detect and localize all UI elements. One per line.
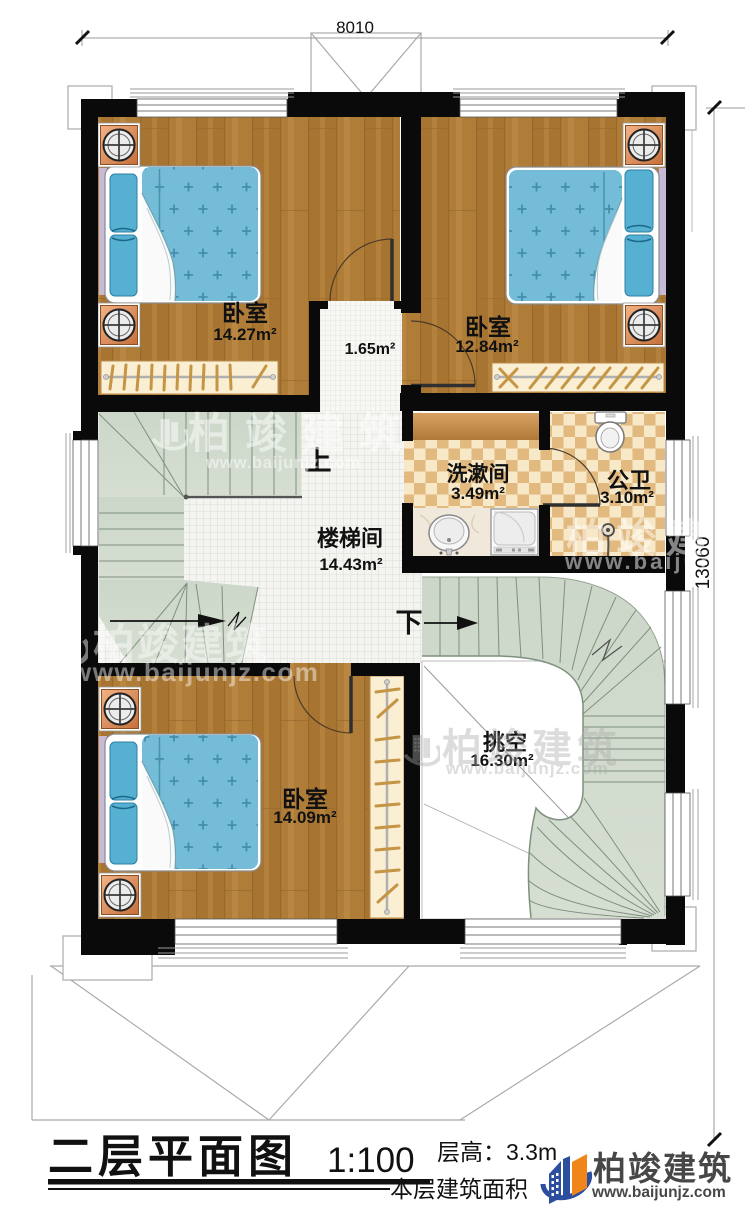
svg-text:14.09m²: 14.09m² [273, 808, 337, 827]
svg-text:卧室: 卧室 [222, 300, 268, 326]
svg-text:12.84m²: 12.84m² [455, 337, 519, 356]
svg-text:3.10m²: 3.10m² [600, 488, 654, 507]
svg-text:二层平面图: 二层平面图 [48, 1131, 298, 1182]
svg-text:www.baijunjz.com: www.baijunjz.com [591, 1184, 726, 1201]
svg-text:www.baijunjz.com: www.baijunjz.com [445, 759, 609, 778]
svg-text:1:100: 1:100 [327, 1141, 415, 1180]
svg-text:柏竣建筑: 柏竣建筑 [188, 410, 416, 457]
svg-text:1.65m²: 1.65m² [345, 341, 396, 358]
svg-text:www.baijunjz.com: www.baijunjz.com [205, 453, 361, 472]
svg-text:3.49m²: 3.49m² [451, 484, 505, 503]
svg-text:洗漱间: 洗漱间 [447, 463, 510, 486]
svg-text:www.baijunjz.com: www.baijunjz.com [564, 549, 750, 574]
svg-text:柏竣建筑: 柏竣建筑 [593, 1150, 733, 1187]
svg-text:14.27m²: 14.27m² [213, 325, 277, 344]
svg-text:楼梯间: 楼梯间 [317, 526, 383, 551]
svg-text:层高：3.3m: 层高：3.3m [437, 1139, 557, 1165]
svg-text:www.baijunjz.com: www.baijunjz.com [70, 657, 319, 687]
svg-text:14.43m²: 14.43m² [319, 555, 383, 574]
svg-text:8010: 8010 [336, 18, 374, 37]
svg-text:下: 下 [396, 608, 423, 638]
